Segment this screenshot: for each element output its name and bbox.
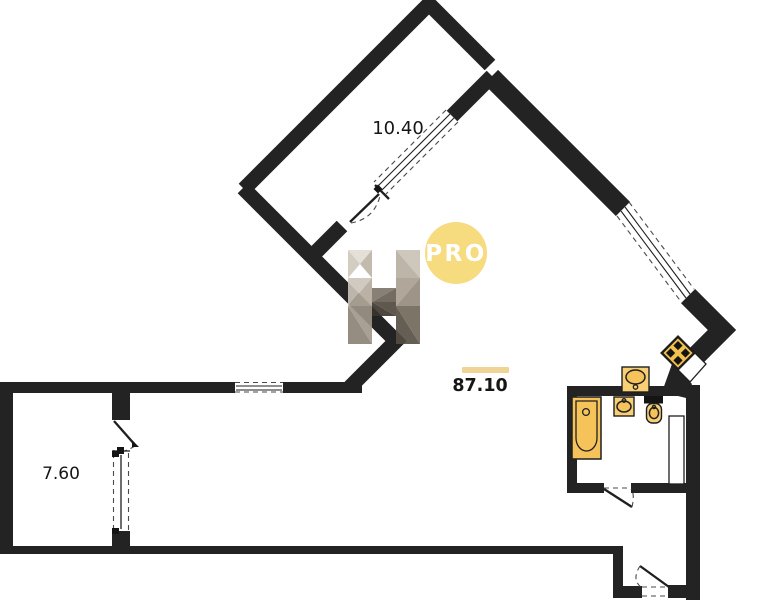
sliding-door-left-room (112, 451, 129, 534)
sink-icon (622, 367, 649, 392)
wall-loggia-outer (244, 4, 490, 189)
door-loggia (350, 184, 389, 223)
wall-entry-post (668, 585, 686, 598)
wall-loggia-partition-piece (314, 226, 342, 254)
wall-east-corner (688, 296, 722, 355)
wall-top-left (0, 382, 235, 393)
floor-plan: PRO 10.40 7.60 87.10 (0, 0, 766, 600)
door-left-room (112, 421, 139, 454)
wall-left-exterior (0, 382, 13, 554)
pro-badge: PRO (425, 222, 487, 284)
total-area-label: 87.10 (452, 367, 509, 396)
pro-badge-label: PRO (425, 241, 487, 267)
window-northeast (616, 202, 695, 303)
total-area-bar (462, 367, 509, 373)
wall-entry-step (613, 546, 623, 590)
room-area-label-left: 7.60 (42, 464, 80, 484)
toilet-icon (644, 396, 663, 423)
wall-bottom (0, 546, 623, 554)
wall-entry-bottom (613, 586, 642, 598)
wall-divider-top-stub (112, 393, 130, 420)
wall-bathroom-bottom-left (567, 483, 604, 493)
wall-bathroom-bottom-right (631, 483, 700, 493)
room-area-label-top: 10.40 (372, 118, 424, 139)
wall-northeast-diagonal (491, 77, 623, 209)
bathroom-niche (669, 416, 684, 484)
window-left (235, 381, 283, 394)
door-bathroom (604, 488, 633, 507)
bathtub-icon (572, 397, 601, 459)
washbasin-icon (614, 397, 634, 416)
wall-loggia-sw-chevron (243, 188, 396, 387)
total-area-value: 87.10 (452, 376, 507, 396)
